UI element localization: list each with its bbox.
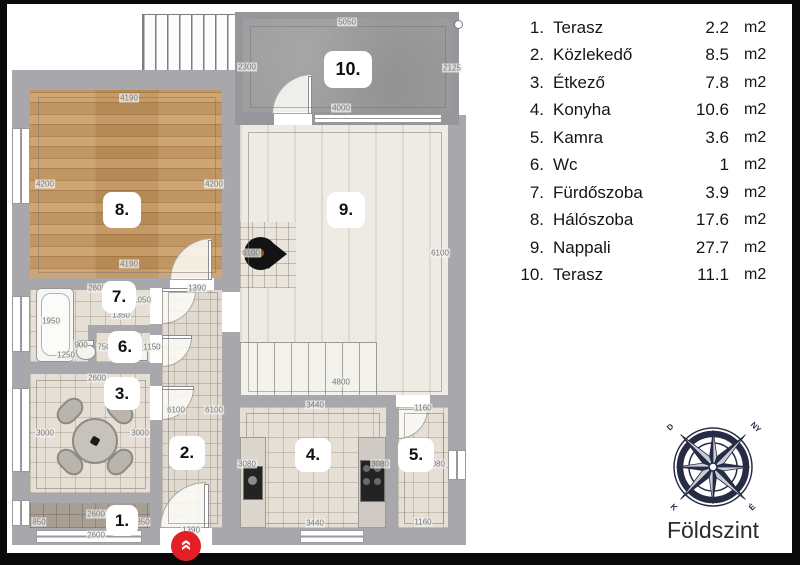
- legend-number: 3.: [503, 73, 544, 93]
- legend-area-value: 8.5: [673, 45, 729, 65]
- dimension-label: 2125: [442, 64, 462, 73]
- legend-area-value: 1: [673, 155, 729, 175]
- legend-room-name: Kamra: [544, 128, 673, 148]
- dimension-label: 6100: [204, 406, 224, 415]
- exterior-stairs: [142, 14, 240, 74]
- legend-number: 5.: [503, 128, 544, 148]
- room-badge-7: 7.: [102, 281, 136, 313]
- door-gap-bathroom: [150, 288, 162, 324]
- legend-row: 7. Fürdőszoba 3.9 m2: [503, 179, 788, 207]
- dimension-label: 1160: [413, 518, 432, 527]
- legend-row: 5. Kamra 3.6 m2: [503, 124, 788, 152]
- room-badge-10: 10.: [324, 51, 372, 88]
- dimension-label: 850: [31, 518, 46, 527]
- legend-area-value: 10.6: [673, 100, 729, 120]
- entrance-marker: »: [171, 531, 201, 561]
- frame-top: [0, 0, 800, 4]
- frame-right: [792, 0, 800, 565]
- legend-room-name: Nappali: [544, 238, 673, 258]
- dimension-label: 1160: [413, 404, 432, 413]
- legend-area-unit: m2: [729, 239, 788, 257]
- legend-room-name: Terasz: [544, 265, 673, 285]
- dimension-label: 4800: [331, 378, 351, 387]
- legend-row: 9. Nappali 27.7 m2: [503, 234, 788, 262]
- dimension-label: 3440: [305, 519, 325, 528]
- wall-outer-top: [12, 70, 228, 90]
- legend-row: 6. Wc 1 m2: [503, 152, 788, 180]
- window-terrace1: [12, 500, 30, 526]
- legend-room-name: Közlekedő: [544, 45, 673, 65]
- dimension-label: 4190: [119, 94, 139, 103]
- legend-area-unit: m2: [729, 74, 788, 92]
- room-badge-5: 5.: [398, 438, 434, 472]
- legend-room-name: Hálószoba: [544, 210, 673, 230]
- floor-plan-page: » 5050 2300 2125 4000 4190 4200 4200 419…: [0, 0, 800, 565]
- legend-area-unit: m2: [729, 211, 788, 229]
- compass-rose-icon: D NY K É: [663, 417, 763, 517]
- legend-area-unit: m2: [729, 46, 788, 64]
- legend-room-name: Fürdőszoba: [544, 183, 673, 203]
- stove-burner: [363, 478, 370, 485]
- legend-number: 9.: [503, 238, 544, 258]
- room-badge-8: 8.: [103, 192, 141, 228]
- window-livingroom-terrace: [314, 114, 442, 123]
- dimension-label: 2600: [86, 531, 106, 540]
- legend-number: 6.: [503, 155, 544, 175]
- legend-row: 8. Hálószoba 17.6 m2: [503, 207, 788, 235]
- dimension-label: 900: [73, 341, 88, 350]
- dimension-label: 2600: [86, 510, 106, 519]
- legend-area-value: 2.2: [673, 18, 729, 38]
- legend-room-name: Wc: [544, 155, 673, 175]
- window-bathroom: [12, 296, 30, 352]
- dimension-label: 1250: [56, 351, 76, 360]
- room-badge-6: 6.: [108, 331, 142, 363]
- entrance-chevron-icon: »: [176, 539, 196, 550]
- dimension-label: 3440: [305, 401, 325, 410]
- stove-burner: [374, 478, 381, 485]
- dimension-label: 1950: [41, 317, 61, 326]
- legend-number: 8.: [503, 210, 544, 230]
- floor-name-label: Földszint: [648, 517, 778, 544]
- dimension-label: 4000: [331, 104, 351, 113]
- sink-basin-detail: [248, 476, 257, 485]
- compass-letter-se: É: [747, 502, 758, 513]
- legend-row: 4. Konyha 10.6 m2: [503, 97, 788, 125]
- dim-line-room8: [38, 97, 216, 273]
- room-badge-3: 3.: [104, 377, 140, 410]
- dimension-label: 6100: [430, 249, 450, 258]
- legend-area-unit: m2: [729, 101, 788, 119]
- legend-area-unit: m2: [729, 19, 788, 37]
- dimension-label: 6100: [241, 249, 261, 258]
- room-legend: 1. Terasz 2.2 m2 2. Közlekedő 8.5 m2 3. …: [503, 14, 788, 289]
- legend-area-unit: m2: [729, 266, 788, 284]
- opening-hall-livingroom: [222, 292, 240, 332]
- dimension-label: 4200: [204, 180, 224, 189]
- room-badge-2: 2.: [169, 436, 205, 470]
- legend-area-value: 3.6: [673, 128, 729, 148]
- legend-number: 10.: [503, 265, 544, 285]
- compass-letter-nw: D: [665, 422, 676, 433]
- legend-room-name: Konyha: [544, 100, 673, 120]
- compass-letter-ne: NY: [749, 420, 763, 435]
- dimension-label: 4200: [35, 180, 55, 189]
- legend-row: 10. Terasz 11.1 m2: [503, 262, 788, 290]
- compass-letter-sw: K: [669, 502, 680, 513]
- wall-wc-dining: [12, 362, 158, 374]
- window-pantry: [448, 450, 466, 480]
- legend-number: 7.: [503, 183, 544, 203]
- room-badge-1: 1.: [106, 505, 138, 536]
- dimension-label: 5050: [337, 18, 357, 27]
- dimension-label: 3000: [130, 429, 150, 438]
- legend-area-unit: m2: [729, 156, 788, 174]
- legend-area-unit: m2: [729, 184, 788, 202]
- legend-area-unit: m2: [729, 129, 788, 147]
- dimension-label: 3080: [370, 460, 390, 469]
- dimension-label: 6100: [166, 406, 186, 415]
- dimension-label: 3080: [237, 460, 257, 469]
- window-dining: [12, 388, 30, 472]
- window-bottom-kitchen: [300, 530, 364, 543]
- legend-number: 1.: [503, 18, 544, 38]
- legend-row: 3. Étkező 7.8 m2: [503, 69, 788, 97]
- dimension-label: 4190: [119, 260, 139, 269]
- legend-area-value: 17.6: [673, 210, 729, 230]
- legend-area-value: 7.8: [673, 73, 729, 93]
- wall-dining-terrace: [12, 493, 158, 503]
- door-gap-dining: [150, 386, 162, 420]
- legend-number: 4.: [503, 100, 544, 120]
- legend-number: 2.: [503, 45, 544, 65]
- dimension-label: 1150: [142, 343, 161, 352]
- downspout-icon: [454, 20, 463, 29]
- legend-row: 1. Terasz 2.2 m2: [503, 14, 788, 42]
- frame-bottom: [0, 553, 800, 565]
- dimension-label: 2300: [237, 63, 257, 72]
- room-badge-9: 9.: [327, 192, 365, 228]
- legend-row: 2. Közlekedő 8.5 m2: [503, 42, 788, 70]
- dimension-label: 3000: [35, 429, 55, 438]
- stove-burner: [363, 465, 370, 472]
- window-bedroom: [12, 128, 30, 204]
- room-badge-4: 4.: [295, 438, 331, 472]
- dimension-label: 1390: [187, 284, 207, 293]
- legend-room-name: Étkező: [544, 73, 673, 93]
- frame-left: [0, 0, 7, 565]
- legend-area-value: 11.1: [673, 265, 729, 285]
- legend-room-name: Terasz: [544, 18, 673, 38]
- legend-area-value: 27.7: [673, 238, 729, 258]
- legend-area-value: 3.9: [673, 183, 729, 203]
- dim-line-room9: [248, 132, 442, 392]
